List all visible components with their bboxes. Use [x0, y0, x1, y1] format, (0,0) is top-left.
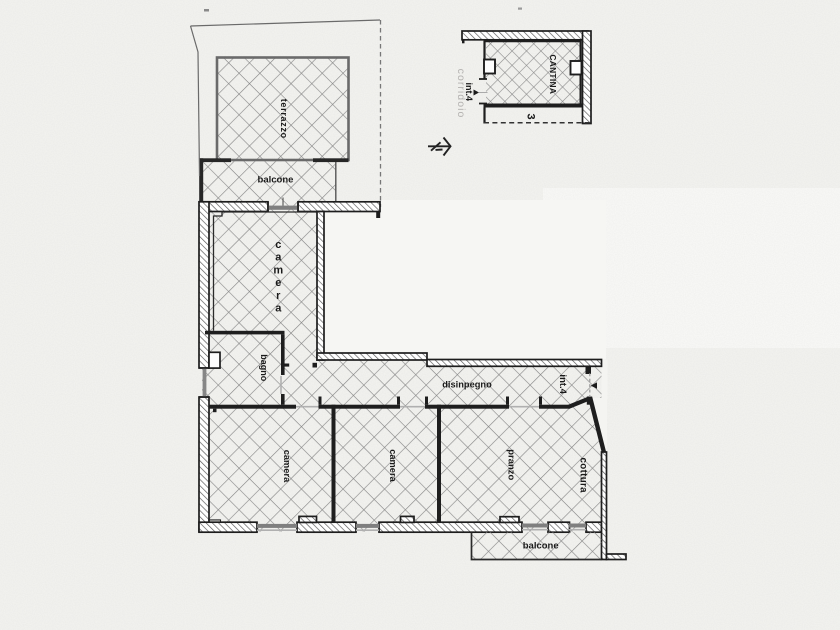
svg-text:CANTINA: CANTINA [548, 54, 558, 94]
svg-text:c: c [275, 239, 281, 251]
svg-text:e: e [275, 277, 281, 289]
svg-text:disinpegno: disinpegno [442, 380, 492, 390]
svg-text:camera: camera [388, 449, 398, 482]
svg-text:balcone: balcone [523, 541, 559, 552]
svg-text:a: a [275, 303, 282, 315]
svg-text:cottura: cottura [578, 458, 589, 494]
svg-text:r: r [276, 290, 281, 302]
svg-text:camera: camera [282, 450, 292, 483]
svg-text:balcone: balcone [258, 175, 294, 186]
svg-text:terrazzo: terrazzo [279, 99, 289, 139]
svg-text:pranzo: pranzo [506, 449, 517, 480]
svg-text:m: m [273, 264, 283, 276]
svg-text:int.4: int.4 [557, 374, 568, 394]
svg-text:a: a [275, 252, 282, 264]
svg-text:3: 3 [524, 114, 536, 120]
svg-text:bagno: bagno [259, 354, 269, 381]
svg-text:int.4: int.4 [464, 83, 474, 102]
